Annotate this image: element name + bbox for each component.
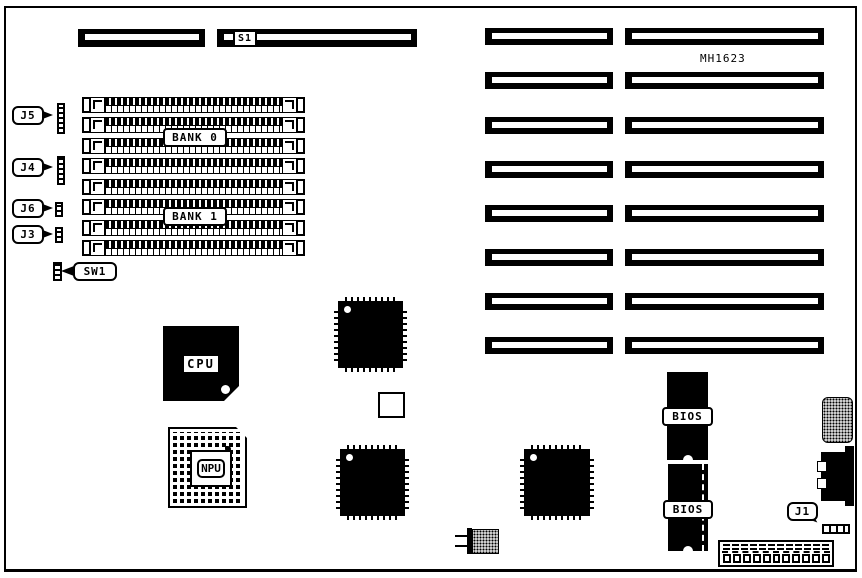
expansion-slot (625, 293, 824, 310)
bank1-label: BANK 1 (163, 207, 227, 226)
expansion-slot (485, 249, 613, 266)
j4-label: J4 (12, 158, 44, 177)
expansion-slot (625, 117, 824, 134)
simm-socket (82, 97, 305, 113)
power-pin-row-bottom (723, 554, 830, 563)
bios-chip-bottom: BIOS (668, 464, 708, 551)
expansion-slot (625, 249, 824, 266)
qfp-chip (334, 297, 407, 372)
npu-label: NPU (197, 459, 225, 478)
qfp-pin1-dot-icon (346, 454, 353, 461)
j3-label: J3 (12, 225, 44, 244)
expansion-slot (485, 161, 613, 178)
bank0-label: BANK 0 (163, 128, 227, 147)
board-outline (4, 6, 857, 572)
expansion-slot (485, 337, 613, 354)
j1-label: J1 (787, 502, 818, 521)
s1-label: S1 (233, 30, 257, 47)
simm-socket (82, 179, 305, 195)
bios-chip-top: BIOS (667, 372, 708, 460)
simm-socket (82, 158, 305, 174)
connector-j4 (57, 156, 65, 185)
expansion-slot (625, 337, 824, 354)
chip-notch-icon (683, 546, 693, 556)
connector-j5 (57, 103, 65, 134)
cpu-label: CPU (183, 355, 219, 373)
small-chip-outline (378, 392, 405, 418)
power-pin-row-top (723, 543, 830, 550)
expansion-slot (625, 72, 824, 89)
qfp-pin1-dot-icon (530, 454, 537, 461)
bios-top-label: BIOS (662, 407, 713, 426)
top-slot-s1: S1 (217, 29, 417, 47)
npu-pin1-dot-icon (225, 446, 231, 452)
connector-j3 (55, 227, 63, 243)
expansion-slot (485, 117, 613, 134)
simm-socket (82, 240, 305, 256)
npu-well: NPU (190, 450, 232, 487)
top-slot-left (78, 29, 205, 47)
cpu-pin1-dot-icon (221, 385, 230, 394)
qfp-chip (520, 445, 594, 520)
bios-bottom-label: BIOS (663, 500, 713, 519)
expansion-slot (625, 28, 824, 45)
expansion-slot (485, 28, 613, 45)
board-part-number: MH1623 (700, 52, 746, 65)
j5-label: J5 (12, 106, 44, 125)
keyboard-din-connector (817, 444, 857, 508)
expansion-slot (625, 161, 824, 178)
qfp-pin1-dot-icon (344, 306, 351, 313)
expansion-slot (485, 72, 613, 89)
expansion-slot (625, 205, 824, 222)
expansion-slot (485, 205, 613, 222)
power-divider (722, 551, 830, 553)
motherboard-diagram: S1 MH1623 BANK 0 BANK 1 J5 J4 J6 J3 SW1 … (0, 0, 862, 578)
crystal-oscillator (455, 528, 498, 554)
qfp-chip (336, 445, 409, 520)
connector-j6 (55, 202, 63, 217)
sw1-label: SW1 (73, 262, 117, 281)
connector-j1 (822, 524, 850, 534)
expansion-slot (485, 293, 613, 310)
power-connector (718, 540, 834, 567)
power-inlet-connector (822, 397, 853, 443)
j6-label: J6 (12, 199, 44, 218)
npu-socket: NPU (168, 427, 247, 508)
cpu-chip: CPU (163, 326, 239, 401)
